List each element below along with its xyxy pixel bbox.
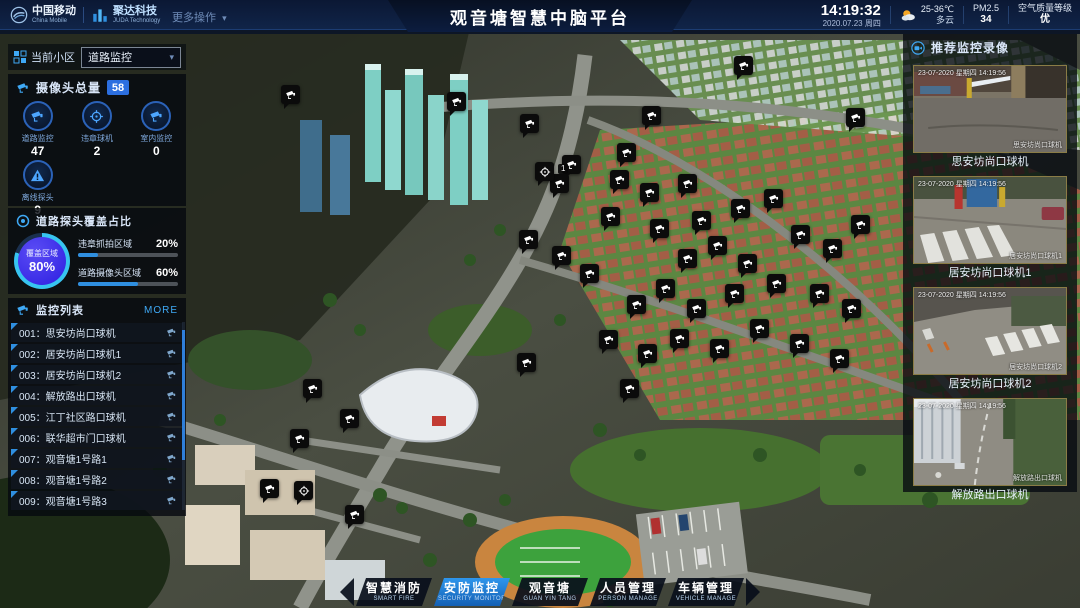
juda-tech-name: 聚达科技 [113, 6, 160, 17]
map-camera-marker[interactable] [580, 264, 599, 283]
map-camera-marker[interactable] [638, 344, 657, 363]
map-camera-marker[interactable] [670, 329, 689, 348]
camera-stats-panel: 摄像头总量 58 道路监控47违章球机2室内监控0离线探头9 [8, 74, 186, 206]
community-label: 当前小区 [31, 49, 75, 65]
map-camera-marker[interactable] [830, 349, 849, 368]
more-link[interactable]: MORE [144, 305, 178, 316]
bar-track [78, 282, 178, 286]
clock-date: 2020.07.23 周四 [821, 20, 881, 28]
video-thumbnail[interactable]: 23-07-2020 星期四 14:19:56居安坊尚口球机1 [913, 176, 1067, 264]
stat-value: 47 [31, 144, 44, 158]
video-label: 解放路出口球机 [913, 489, 1067, 502]
tab-person-manage[interactable]: 人员管理PERSON MANAGE [590, 578, 666, 606]
tab-label-en: GUAN YIN TANG [523, 596, 576, 602]
video-label: 居安坊尚口球机2 [913, 378, 1067, 391]
list-scrollbar-thumb[interactable] [182, 330, 185, 460]
tab-smart-fire[interactable]: 智慧消防SMART FIRE [356, 578, 432, 606]
cctv-icon [166, 432, 177, 443]
clock-time: 14:19:32 [821, 3, 881, 18]
community-icon [13, 50, 27, 64]
video-watermark: 解放路出口球机 [1013, 473, 1062, 483]
map-camera-marker[interactable] [517, 353, 536, 372]
list-scrollbar[interactable] [182, 322, 185, 510]
tab-label-en: PERSON MANAGE [598, 596, 658, 602]
camera-stat: 违章球机2 [67, 101, 126, 158]
monitor-item-label: 004：解放路出口球机 [19, 388, 166, 403]
monitor-list-item[interactable]: 001：思安坊尚口球机 [11, 323, 183, 342]
app-root: 1 中国移动 China Mobile 聚达科技 JUDA Technology… [0, 0, 1080, 608]
map-camera-marker[interactable] [734, 56, 753, 75]
map-camera-marker[interactable] [519, 230, 538, 249]
map-camera-marker[interactable] [764, 189, 783, 208]
stat-circle [23, 101, 53, 131]
header-divider [83, 7, 84, 23]
video-thumbnail[interactable]: 23-07-2020 星期四 14:19:56思安坊尚口球机 [913, 65, 1067, 153]
map-camera-marker[interactable] [601, 207, 620, 226]
coverage-donut: 覆盖区域 80% [14, 233, 70, 289]
logo-group: 中国移动 China Mobile 聚达科技 JUDA Technology [10, 0, 160, 30]
video-label: 思安坊尚口球机 [913, 156, 1067, 169]
monitor-list-item[interactable]: 008：观音塘1号路2 [11, 470, 183, 489]
monitor-list-item[interactable]: 005：江丁社区路口球机 [11, 407, 183, 426]
pm25-label: PM2.5 [973, 3, 999, 14]
tab-security-monitor[interactable]: 安防监控SECURITY MONITOR [434, 578, 510, 606]
bar-track [78, 253, 178, 257]
tab-label-cn: 安防监控 [444, 582, 500, 594]
video-watermark: 居安坊尚口球机2 [1009, 362, 1062, 372]
tab-label-cn: 人员管理 [600, 582, 656, 594]
video-thumbnail[interactable]: 23-07-2020 星期四 14:19:56居安坊尚口球机2 [913, 287, 1067, 375]
tab-label-en: VEHICLE MANAGE [676, 596, 736, 602]
bar-chart-icon [91, 6, 109, 24]
monitor-item-label: 001：思安坊尚口球机 [19, 325, 166, 340]
tab-label-en: SECURITY MONITOR [438, 596, 506, 602]
donut-value: 80% [29, 259, 55, 274]
map-camera-marker[interactable] [290, 429, 309, 448]
camera-total-badge: 58 [107, 80, 129, 95]
coverage-bar: 违章抓拍区域20% [78, 237, 178, 257]
community-selector-row: 当前小区 道路监控 [8, 44, 186, 70]
video-card: 23-07-2020 星期四 14:19:56思安坊尚口球机思安坊尚口球机 [913, 65, 1067, 169]
map-camera-marker[interactable] [552, 246, 571, 265]
stat-label: 道路监控 [22, 133, 54, 144]
video-timestamp: 23-07-2020 星期四 14:19:56 [918, 401, 1006, 411]
map-camera-marker[interactable] [260, 479, 279, 498]
coverage-bars: 违章抓拍区域20%道路摄像头区域60% [78, 237, 178, 286]
pm25-widget: PM2.5 34 [973, 3, 999, 27]
sun-cloud-icon [900, 7, 917, 24]
map-camera-marker[interactable] [846, 108, 865, 127]
video-watermark: 思安坊尚口球机 [1013, 140, 1062, 150]
china-mobile-name-en: China Mobile [32, 18, 76, 24]
video-card: 23-07-2020 星期四 14:19:56居安坊尚口球机1居安坊尚口球机1 [913, 176, 1067, 280]
monitor-item-label: 008：观音塘1号路2 [19, 472, 166, 487]
coverage-panel: 道路探头覆盖占比 覆盖区域 80% 违章抓拍区域20%道路摄像头区域60% [8, 208, 186, 294]
map-camera-marker[interactable] [620, 379, 639, 398]
monitor-item-label: 003：居安坊尚口球机2 [19, 367, 166, 382]
camera-total-label: 摄像头总量 [36, 79, 101, 96]
monitor-item-label: 007：观音塘1号路1 [19, 451, 166, 466]
map-violation-marker[interactable] [294, 481, 313, 500]
stat-label: 室内监控 [140, 133, 172, 144]
coverage-title: 道路探头覆盖占比 [36, 213, 132, 229]
monitor-item-label: 002：居安坊尚口球机1 [19, 346, 166, 361]
monitor-list-item[interactable]: 002：居安坊尚口球机1 [11, 344, 183, 363]
cctv-icon [30, 109, 45, 124]
map-camera-marker[interactable] [738, 254, 757, 273]
air-quality-label: 空气质量等级 [1018, 3, 1072, 14]
map-camera-marker[interactable] [687, 299, 706, 318]
china-mobile-icon [10, 6, 28, 24]
china-mobile-name: 中国移动 [32, 6, 76, 17]
juda-tech-name-en: JUDA Technology [113, 18, 160, 24]
bar-label: 道路摄像头区域 [78, 266, 141, 279]
map-camera-marker[interactable] [725, 284, 744, 303]
monitor-list-item[interactable]: 004：解放路出口球机 [11, 386, 183, 405]
map-camera-marker[interactable] [823, 239, 842, 258]
juda-tech-logo: 聚达科技 JUDA Technology [91, 6, 160, 24]
monitor-item-label: 009：观音塘1号路3 [19, 493, 166, 508]
map-camera-marker[interactable] [345, 505, 364, 524]
map-camera-marker[interactable] [708, 236, 727, 255]
map-camera-marker[interactable] [617, 143, 636, 162]
map-camera-marker[interactable] [731, 199, 750, 218]
cctv-icon [166, 390, 177, 401]
cctv-icon [166, 348, 177, 359]
cctv-icon [149, 109, 164, 124]
tab-label-cn: 观音塘 [529, 582, 571, 594]
map-camera-marker[interactable] [678, 249, 697, 268]
video-thumbnail[interactable]: 23-07-2020 星期四 14:19:56解放路出口球机 [913, 398, 1067, 486]
community-selected-value: 道路监控 [88, 49, 132, 65]
map-camera-marker[interactable] [750, 319, 769, 338]
top-header: 中国移动 China Mobile 聚达科技 JUDA Technology 更… [0, 0, 1080, 30]
chart-icon [16, 214, 30, 228]
map-camera-marker[interactable] [610, 170, 629, 189]
camera-stat: 道路监控47 [8, 101, 67, 158]
crosshair-icon [89, 109, 104, 124]
tab-label-cn: 车辆管理 [678, 582, 734, 594]
monitor-item-label: 006：联华超市门口球机 [19, 430, 166, 445]
map-camera-marker[interactable] [851, 215, 870, 234]
more-actions-menu[interactable]: 更多操作 [172, 9, 227, 25]
air-quality-widget: 空气质量等级 优 [1018, 3, 1072, 27]
title-banner: 观音塘智慧中脑平台 [388, 0, 692, 32]
stat-circle [23, 160, 53, 190]
map-camera-marker[interactable] [640, 183, 659, 202]
stat-value: 0 [153, 144, 160, 158]
marker-cluster-badge[interactable]: 1 [558, 164, 568, 174]
map-camera-marker[interactable] [627, 295, 646, 314]
tab-vehicle-manage[interactable]: 车辆管理VEHICLE MANAGE [668, 578, 744, 606]
monitor-list: 001：思安坊尚口球机002：居安坊尚口球机1003：居安坊尚口球机2004：解… [11, 323, 183, 510]
pm25-value: 34 [973, 14, 999, 27]
map-camera-marker[interactable] [642, 106, 661, 125]
monitor-list-item[interactable]: 006：联华超市门口球机 [11, 428, 183, 447]
monitor-list-item[interactable]: 003：居安坊尚口球机2 [11, 365, 183, 384]
recommended-video-panel: 推荐监控录像 23-07-2020 星期四 14:19:56思安坊尚口球机思安坊… [903, 34, 1077, 492]
china-mobile-logo: 中国移动 China Mobile [10, 6, 76, 24]
warning-icon [30, 168, 45, 183]
video-timestamp: 23-07-2020 星期四 14:19:56 [918, 68, 1006, 78]
map-camera-marker[interactable] [791, 225, 810, 244]
more-actions-label: 更多操作 [172, 12, 216, 24]
map-camera-marker[interactable] [520, 114, 539, 133]
map-camera-marker[interactable] [340, 409, 359, 428]
header-separator [1008, 6, 1009, 24]
monitor-item-label: 005：江丁社区路口球机 [19, 409, 166, 424]
cctv-icon [166, 411, 177, 422]
stat-value: 2 [94, 144, 101, 158]
map-camera-marker[interactable] [710, 339, 729, 358]
map-camera-marker[interactable] [281, 85, 300, 104]
map-camera-marker[interactable] [810, 284, 829, 303]
video-timestamp: 23-07-2020 星期四 14:19:56 [918, 179, 1006, 189]
page-title: 观音塘智慧中脑平台 [450, 4, 630, 29]
monitor-list-panel: 监控列表 MORE 001：思安坊尚口球机002：居安坊尚口球机1003：居安坊… [8, 298, 186, 516]
weather-condition: 多云 [921, 15, 954, 26]
map-camera-marker[interactable] [692, 211, 711, 230]
cctv-icon [166, 369, 177, 380]
air-quality-value: 优 [1018, 14, 1072, 27]
donut-label: 覆盖区域 [26, 248, 58, 259]
video-card-list: 23-07-2020 星期四 14:19:56思安坊尚口球机思安坊尚口球机23-… [903, 65, 1077, 502]
map-camera-marker[interactable] [650, 219, 669, 238]
map-camera-marker[interactable] [303, 379, 322, 398]
video-timestamp: 23-07-2020 星期四 14:19:56 [918, 290, 1006, 300]
stat-label: 离线探头 [22, 192, 54, 203]
video-card: 23-07-2020 星期四 14:19:56解放路出口球机解放路出口球机 [913, 398, 1067, 502]
map-camera-marker[interactable] [656, 279, 675, 298]
video-label: 居安坊尚口球机1 [913, 267, 1067, 280]
tab-label-cn: 智慧消防 [366, 582, 422, 594]
monitor-list-title: 监控列表 [36, 302, 84, 318]
map-camera-marker[interactable] [447, 92, 466, 111]
monitor-list-item[interactable]: 009：观音塘1号路3 [11, 491, 183, 510]
stat-circle [82, 101, 112, 131]
bar-value: 60% [156, 267, 178, 279]
camera-stat: 室内监控0 [127, 101, 186, 158]
coverage-bar: 道路摄像头区域60% [78, 266, 178, 286]
monitor-list-item[interactable]: 007：观音塘1号路1 [11, 449, 183, 468]
camera-icon [16, 81, 30, 95]
bar-fill [78, 282, 138, 286]
tab-label-en: SMART FIRE [373, 596, 414, 602]
map-camera-marker[interactable] [678, 174, 697, 193]
camera-stat-grid: 道路监控47违章球机2室内监控0离线探头9 [8, 101, 186, 218]
weather-widget: 25-36℃ 多云 [900, 4, 954, 26]
stat-circle [141, 101, 171, 131]
clock: 14:19:32 2020.07.23 周四 [821, 3, 881, 28]
cctv-icon [166, 453, 177, 464]
header-status-cluster: 14:19:32 2020.07.23 周四 25-36℃ 多云 PM2.5 3… [821, 0, 1072, 30]
video-icon [911, 41, 925, 55]
community-select[interactable]: 道路监控 [81, 47, 181, 68]
map-camera-marker[interactable] [790, 334, 809, 353]
bar-label: 违章抓拍区域 [78, 237, 132, 250]
header-separator [890, 6, 891, 24]
header-separator [963, 6, 964, 24]
tab-bar-right-cap [746, 578, 760, 606]
cctv-icon [166, 474, 177, 485]
bar-fill [78, 253, 98, 257]
tab-bar-left-cap [340, 578, 354, 606]
cctv-icon [166, 327, 177, 338]
map-violation-marker[interactable] [535, 162, 554, 181]
video-card: 23-07-2020 星期四 14:19:56居安坊尚口球机2居安坊尚口球机2 [913, 287, 1067, 391]
map-camera-marker[interactable] [599, 330, 618, 349]
bar-value: 20% [156, 238, 178, 250]
video-watermark: 居安坊尚口球机1 [1009, 251, 1062, 261]
stat-label: 违章球机 [81, 133, 113, 144]
list-icon [16, 303, 30, 317]
map-camera-marker[interactable] [767, 274, 786, 293]
recommended-video-title: 推荐监控录像 [931, 39, 1009, 56]
temperature: 25-36℃ [921, 4, 954, 15]
cctv-icon [166, 495, 177, 506]
map-camera-marker[interactable] [842, 299, 861, 318]
tab-guan-yin-tang[interactable]: 观音塘GUAN YIN TANG [512, 578, 588, 606]
bottom-tab-bar: 智慧消防SMART FIRE安防监控SECURITY MONITOR观音塘GUA… [340, 578, 760, 606]
